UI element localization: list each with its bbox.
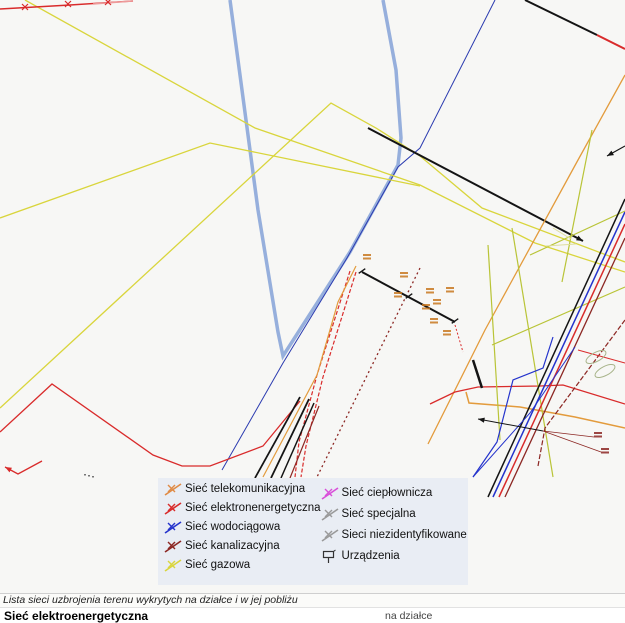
elevation-micro-label — [430, 318, 438, 320]
map-legend: Sieć telekomunikacyjnaSieć elektronenerg… — [158, 478, 468, 585]
green-line-3 — [492, 287, 625, 345]
results-row: Sieć elektroenergetyczna na działce — [0, 607, 625, 623]
power-line-main — [368, 128, 583, 241]
legend-label: Sieć ciepłownicza — [342, 487, 433, 499]
arrowhead-icon — [576, 236, 583, 241]
legend-item: Urządzenia — [321, 548, 467, 564]
telecom-line-long — [428, 75, 625, 444]
elevation-micro-label — [443, 334, 451, 336]
green-line-5 — [562, 130, 592, 282]
elevation-micro-label — [443, 330, 451, 332]
power-stub-east — [473, 360, 482, 388]
elevation-micro-label — [394, 296, 402, 298]
arrowhead-icon — [5, 467, 12, 472]
legend-item: Sieć kanalizacyjna — [164, 538, 321, 554]
elevation-micro-label — [430, 322, 438, 324]
device-symbol-icon — [321, 548, 339, 564]
legend-item: Sieć ciepłownicza — [321, 485, 467, 501]
elevation-micro-label — [446, 287, 454, 289]
bundle-darkred — [505, 238, 625, 497]
gas-line-3 — [0, 143, 420, 218]
power-hatch-2 — [301, 272, 356, 477]
elevation-micro-label — [363, 254, 371, 256]
power-cable-3 — [281, 403, 314, 478]
legend-item: Sieci niezidentyfikowane — [321, 527, 467, 543]
network-result-label[interactable]: Sieć elektroenergetyczna — [4, 609, 148, 623]
elevation-micro-label — [422, 304, 430, 306]
survey-tail — [455, 325, 463, 352]
legend-item: Sieć specjalna — [321, 506, 467, 522]
elevation-micro-label — [433, 303, 441, 305]
network-line-icon — [164, 538, 182, 554]
legend-label: Sieć telekomunikacyjna — [185, 483, 305, 495]
dot-mark-icon — [92, 476, 94, 478]
arrow-line-south — [478, 419, 543, 431]
network-line-icon — [321, 485, 339, 501]
power-stub-west — [5, 461, 42, 474]
legend-label: Urządzenia — [342, 550, 400, 562]
dot-mark-icon — [88, 475, 90, 477]
legend-label: Sieci niezidentyfikowane — [342, 529, 467, 541]
elevation-micro-label — [400, 276, 408, 278]
elevation-micro-label — [426, 288, 434, 290]
arrowhead-icon — [607, 151, 614, 156]
green-line-4 — [530, 211, 625, 255]
power-line-topright-red — [597, 35, 625, 49]
legend-column-left: Sieć telekomunikacyjnaSieć elektronenerg… — [164, 481, 321, 582]
elevation-micro-label — [601, 452, 609, 454]
map-caption-bar: Lista sieci uzbrojenia terenu wykrytych … — [0, 593, 625, 607]
map-viewport[interactable]: Sieć telekomunikacyjnaSieć elektronenerg… — [0, 0, 625, 593]
terrain-oval-icon — [584, 348, 608, 366]
legend-item: Sieć wodociągowa — [164, 519, 321, 535]
on-parcel-column-header: na działce — [385, 610, 432, 622]
utility-map-screen: Sieć telekomunikacyjnaSieć elektronenerg… — [0, 0, 625, 623]
parcel-boundary — [230, 0, 401, 356]
legend-column-right: Sieć ciepłowniczaSieć specjalnaSieci nie… — [321, 481, 467, 582]
elevation-micro-label — [394, 292, 402, 294]
elevation-micro-label — [426, 292, 434, 294]
power-line-mid — [430, 385, 625, 404]
green-line-1 — [512, 228, 553, 477]
network-line-icon — [164, 481, 182, 497]
elevation-micro-label — [594, 432, 602, 434]
elevation-micro-label — [422, 308, 430, 310]
elevation-micro-label — [601, 448, 609, 450]
legend-label: Sieć wodociągowa — [185, 521, 280, 533]
legend-label: Sieć gazowa — [185, 559, 250, 571]
gas-line-1 — [25, 0, 625, 272]
legend-item: Sieć telekomunikacyjna — [164, 481, 321, 497]
elevation-micro-label — [446, 291, 454, 293]
terrain-oval-icon — [593, 362, 617, 380]
network-line-icon — [321, 506, 339, 522]
elevation-micro-label — [400, 272, 408, 274]
power-line-west — [0, 384, 300, 466]
legend-label: Sieć specjalna — [342, 508, 416, 520]
gas-line-2 — [0, 103, 625, 408]
legend-item: Sieć gazowa — [164, 557, 321, 573]
legend-label: Sieć kanalizacyjna — [185, 540, 280, 552]
legend-item: Sieć elektronenergetyczna — [164, 500, 321, 516]
sewer-dotted — [317, 268, 420, 477]
network-line-icon — [164, 500, 182, 516]
map-caption: Lista sieci uzbrojenia terenu wykrytych … — [3, 594, 298, 606]
arrowhead-icon — [478, 418, 485, 423]
network-line-icon — [321, 527, 339, 543]
power-line-topright — [525, 0, 597, 35]
elevation-micro-label — [363, 258, 371, 260]
legend-label: Sieć elektronenergetyczna — [185, 502, 321, 514]
elevation-micro-label — [594, 436, 602, 438]
network-line-icon — [164, 519, 182, 535]
dot-mark-icon — [84, 474, 86, 476]
network-line-icon — [164, 557, 182, 573]
elevation-micro-label — [433, 299, 441, 301]
